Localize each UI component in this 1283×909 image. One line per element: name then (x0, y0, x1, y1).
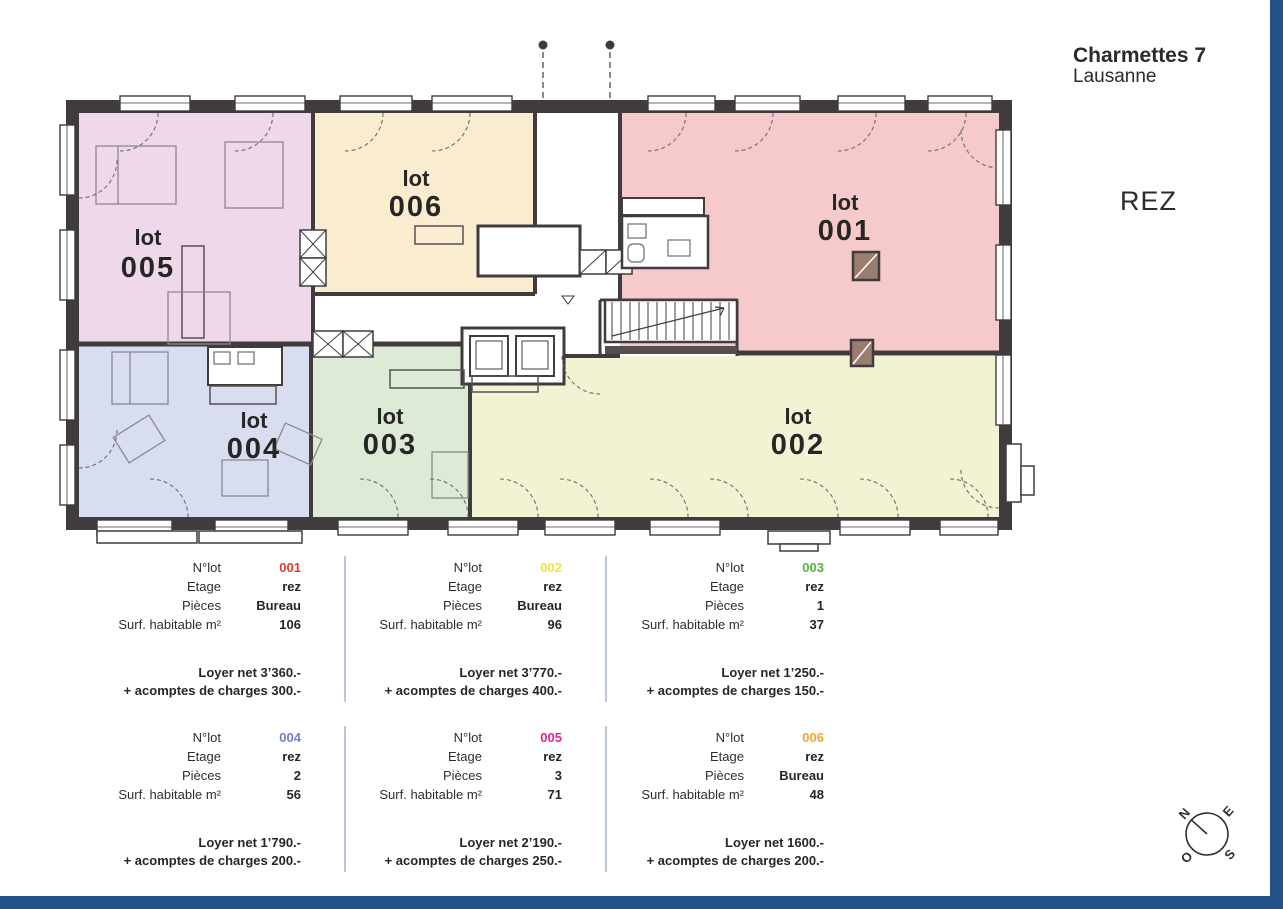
unit-number: 004 (221, 730, 301, 745)
floor-label: REZ (1120, 186, 1177, 217)
unit-surface: 106 (221, 617, 301, 632)
unit-rooms: Bureau (221, 598, 301, 613)
lot-number-001: 001 (818, 215, 872, 247)
charges-line: + acomptes de charges 150.- (608, 682, 824, 700)
lot-region-005 (79, 113, 313, 344)
unit-surface: 48 (744, 787, 824, 802)
lot-number-004: 004 (227, 433, 281, 465)
charges-line: + acomptes de charges 200.- (85, 852, 301, 870)
unit-surface: 37 (744, 617, 824, 632)
spec-label: Etage (608, 749, 744, 764)
unit-surface: 56 (221, 787, 301, 802)
page-frame-bottom (0, 896, 1283, 909)
spec-label: Surf. habitable m² (346, 617, 482, 632)
spec-label: N°lot (608, 730, 744, 745)
plan-sheet-page: Charmettes 7 Lausanne REZ (0, 0, 1283, 909)
compass-icon: N E S O (1150, 780, 1270, 900)
lot-number-003: 003 (363, 429, 417, 461)
unit-floor: rez (744, 579, 824, 594)
lot-number-002: 002 (771, 429, 825, 461)
spec-label: Surf. habitable m² (85, 787, 221, 802)
header: Charmettes 7 Lausanne (1073, 44, 1206, 88)
spec-label: Surf. habitable m² (346, 787, 482, 802)
compass-east: E (1220, 803, 1237, 820)
unit-number: 001 (221, 560, 301, 575)
lot-regions (79, 113, 999, 517)
charges-line: + acomptes de charges 200.- (608, 852, 824, 870)
spec-label: N°lot (85, 560, 221, 575)
bathroom-lot004 (208, 347, 282, 385)
unit-card-006: N°lot 006 Etage rez Pièces Bureau Surf. … (608, 730, 868, 870)
rent-block: Loyer net 3’770.- + acomptes de charges … (346, 664, 606, 700)
rent-block: Loyer net 3’360.- + acomptes de charges … (85, 664, 345, 700)
rent-line: Loyer net 2’190.- (346, 834, 562, 852)
spec-label: N°lot (346, 560, 482, 575)
rent-line: Loyer net 1’790.- (85, 834, 301, 852)
unit-card-001: N°lot 001 Etage rez Pièces Bureau Surf. … (85, 560, 345, 700)
unit-card-003: N°lot 003 Etage rez Pièces 1 Surf. habit… (608, 560, 868, 700)
compass-north: N (1176, 805, 1193, 822)
spec-label: Surf. habitable m² (85, 617, 221, 632)
unit-number: 006 (744, 730, 824, 745)
unit-rooms: 1 (744, 598, 824, 613)
spec-label: Pièces (346, 768, 482, 783)
unit-number: 003 (744, 560, 824, 575)
lot-number-006: 006 (389, 191, 443, 223)
spec-label: Etage (608, 579, 744, 594)
spec-label: Pièces (85, 768, 221, 783)
unit-floor: rez (744, 749, 824, 764)
spec-label: N°lot (608, 560, 744, 575)
unit-floor: rez (482, 749, 562, 764)
unit-card-004: N°lot 004 Etage rez Pièces 2 Surf. habit… (85, 730, 345, 870)
unit-card-005: N°lot 005 Etage rez Pièces 3 Surf. habit… (346, 730, 606, 870)
lot-label-003: lot (377, 404, 405, 429)
unit-floor: rez (221, 749, 301, 764)
compass-west: O (1178, 849, 1196, 867)
spec-label: Pièces (608, 598, 744, 613)
floor-plan-svg: lot 005 lot 006 lot 001 lot 004 lot 003 … (0, 0, 1040, 556)
spec-label: Surf. habitable m² (608, 617, 744, 632)
spec-label: Pièces (608, 768, 744, 783)
rent-line: Loyer net 3’360.- (85, 664, 301, 682)
rent-line: Loyer net 1’250.- (608, 664, 824, 682)
page-frame-right (1270, 0, 1283, 909)
rent-block: Loyer net 1’250.- + acomptes de charges … (608, 664, 868, 700)
spec-label: Etage (85, 749, 221, 764)
spec-label: Pièces (346, 598, 482, 613)
lot-label-004: lot (241, 408, 269, 433)
unit-rooms: Bureau (482, 598, 562, 613)
page-subtitle: Lausanne (1073, 67, 1206, 88)
compass-south: S (1221, 846, 1238, 863)
unit-number: 005 (482, 730, 562, 745)
rent-block: Loyer net 2’190.- + acomptes de charges … (346, 834, 606, 870)
spec-label: Surf. habitable m² (608, 787, 744, 802)
unit-rooms: Bureau (744, 768, 824, 783)
unit-floor: rez (482, 579, 562, 594)
unit-surface: 71 (482, 787, 562, 802)
lot-label-001: lot (832, 190, 860, 215)
page-title: Charmettes 7 (1073, 44, 1206, 67)
charges-line: + acomptes de charges 300.- (85, 682, 301, 700)
bathroom-lot001 (622, 198, 708, 268)
technical-room (478, 226, 632, 276)
rent-block: Loyer net 1’790.- + acomptes de charges … (85, 834, 345, 870)
spec-label: Etage (346, 749, 482, 764)
spec-label: N°lot (85, 730, 221, 745)
lot-label-006: lot (403, 166, 431, 191)
spec-label: Etage (346, 579, 482, 594)
charges-line: + acomptes de charges 250.- (346, 852, 562, 870)
rent-line: Loyer net 3’770.- (346, 664, 562, 682)
spec-label: Pièces (85, 598, 221, 613)
unit-number: 002 (482, 560, 562, 575)
lot-label-002: lot (785, 404, 813, 429)
unit-card-002: N°lot 002 Etage rez Pièces Bureau Surf. … (346, 560, 606, 700)
lot-label-005: lot (135, 225, 163, 250)
unit-floor: rez (221, 579, 301, 594)
rent-line: Loyer net 1600.- (608, 834, 824, 852)
unit-rooms: 2 (221, 768, 301, 783)
unit-rooms: 3 (482, 768, 562, 783)
unit-surface: 96 (482, 617, 562, 632)
spec-label: N°lot (346, 730, 482, 745)
spec-label: Etage (85, 579, 221, 594)
rent-block: Loyer net 1600.- + acomptes de charges 2… (608, 834, 868, 870)
charges-line: + acomptes de charges 400.- (346, 682, 562, 700)
lot-number-005: 005 (121, 252, 175, 284)
